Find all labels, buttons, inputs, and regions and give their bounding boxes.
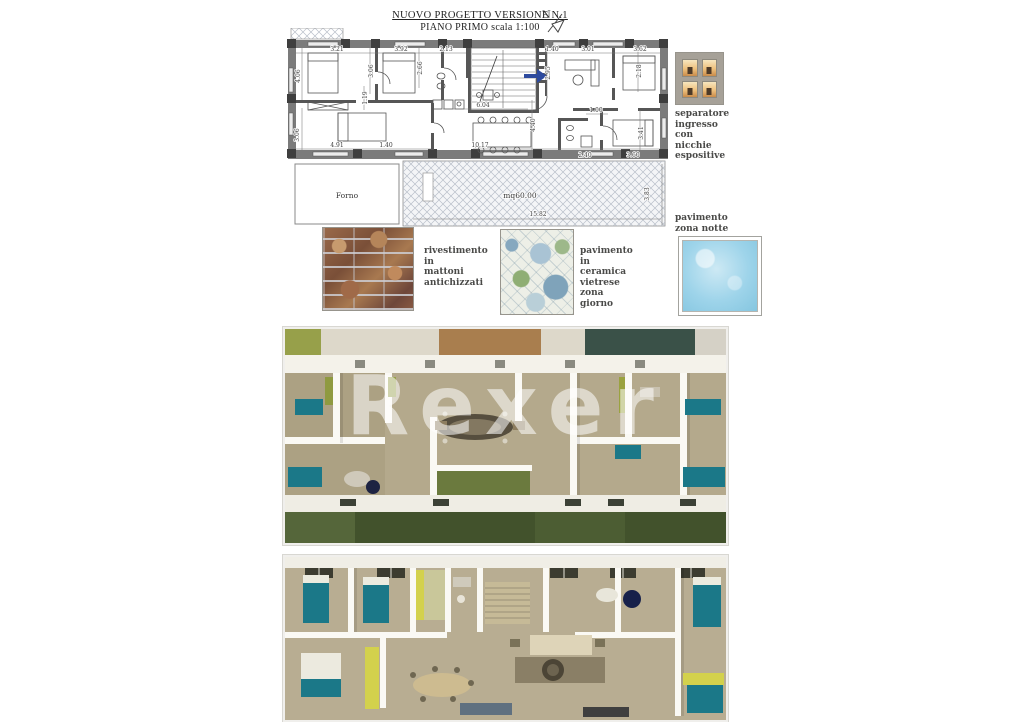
svg-text:4.91: 4.91 <box>330 142 343 149</box>
stairs <box>471 48 536 110</box>
svg-text:3.01: 3.01 <box>581 46 594 53</box>
balcony-hatch <box>291 28 343 39</box>
blue-floor-texture <box>682 240 758 312</box>
svg-text:3.41: 3.41 <box>638 126 645 139</box>
lit-niche <box>702 59 718 77</box>
svg-text:3.06: 3.06 <box>368 64 375 78</box>
terrace-area-label: mq60.00 <box>503 191 537 200</box>
brick-caption: rivestimento in mattoni antichizzati <box>424 246 496 288</box>
render-3d-second-floor <box>283 555 728 722</box>
svg-text:10.17: 10.17 <box>471 142 488 149</box>
floor-plan-drawing: 3.21 3.92 2.13 1.40 3.01 3.62 4.06 3.06 … <box>283 28 673 233</box>
svg-text:15.82: 15.82 <box>529 211 546 218</box>
svg-text:3.60: 3.60 <box>626 152 640 159</box>
svg-text:1.19: 1.19 <box>362 91 369 105</box>
floorplan-presentation: NUOVO PROGETTO VERSIONE N.1 PIANO PRIMO … <box>0 0 1024 722</box>
watermark-text: Rexer <box>346 359 664 454</box>
zona-notte-caption: pavimento zona notte <box>675 213 755 234</box>
brick-material-photo <box>322 227 414 311</box>
svg-text:4.06: 4.06 <box>295 69 302 83</box>
svg-text:3.83: 3.83 <box>644 187 651 201</box>
svg-text:2.18: 2.18 <box>636 64 643 78</box>
zona-notte-floor-photo <box>678 236 762 316</box>
svg-text:2.95: 2.95 <box>545 66 552 80</box>
svg-text:2.13: 2.13 <box>439 46 453 53</box>
lit-niche <box>702 81 718 99</box>
svg-text:3.92: 3.92 <box>394 46 408 53</box>
ceramic-tile-photo <box>500 229 574 315</box>
separator-caption: separatore ingresso con nicchie espositi… <box>675 109 745 162</box>
svg-text:1.00: 1.00 <box>589 107 603 114</box>
lit-niche <box>682 81 698 99</box>
svg-text:2.40: 2.40 <box>578 152 592 159</box>
svg-text:3.06: 3.06 <box>294 128 301 142</box>
svg-text:1.40: 1.40 <box>545 46 559 53</box>
forno-label: Forno <box>336 191 359 200</box>
svg-text:6.04: 6.04 <box>476 102 490 109</box>
lit-niche <box>682 59 698 77</box>
svg-text:4.40: 4.40 <box>530 118 537 132</box>
north-label: N <box>542 10 551 21</box>
render-3d-first-floor: Rexer <box>283 327 728 545</box>
svg-text:1.40: 1.40 <box>379 142 393 149</box>
niche-separator-photo <box>675 52 724 105</box>
svg-text:2.66: 2.66 <box>417 61 424 75</box>
svg-text:3.62: 3.62 <box>633 46 647 53</box>
svg-text:3.21: 3.21 <box>330 46 343 53</box>
ceramic-caption: pavimento in ceramica vietrese zona gior… <box>580 246 644 309</box>
